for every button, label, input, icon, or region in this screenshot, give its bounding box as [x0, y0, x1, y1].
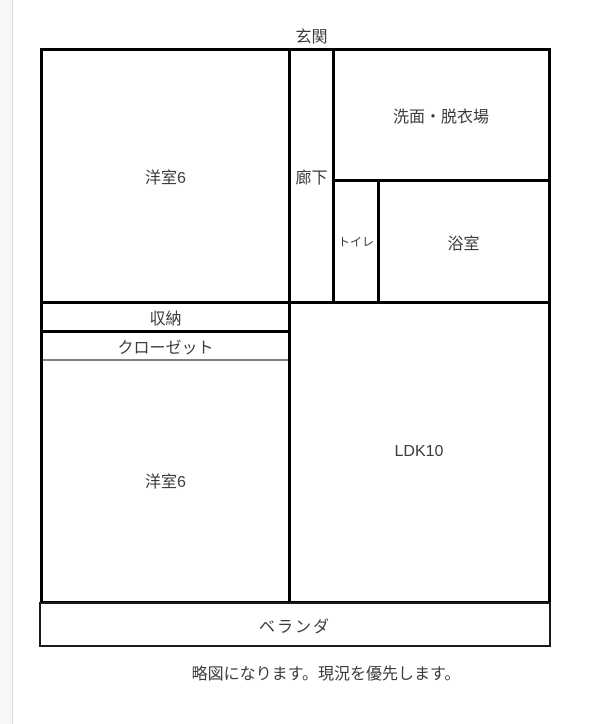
- room-ldk: LDK10: [291, 304, 547, 599]
- room-western-room-top: 洋室6: [43, 51, 288, 301]
- room-closet: クローゼット: [43, 333, 288, 359]
- room-washroom-label: 洗面・脱衣場: [393, 103, 489, 127]
- room-western-room-top-label: 洋室6: [145, 164, 186, 188]
- room-corridor: 廊下: [291, 51, 332, 301]
- room-toilet: トイレ: [335, 182, 377, 301]
- room-closet-label: クローゼット: [117, 334, 213, 358]
- room-bathroom-label: 浴室: [447, 230, 479, 254]
- room-storage: 収納: [43, 304, 288, 330]
- page-edge-strip: [0, 0, 13, 724]
- caption-note: 略図になります。現況を優先します。: [126, 660, 526, 684]
- room-corridor-label: 廊下: [295, 164, 327, 188]
- room-western-room-bottom-label: 洋室6: [145, 468, 186, 492]
- room-ldk-label: LDK10: [395, 443, 444, 461]
- room-veranda-label: ベランダ: [259, 613, 331, 637]
- room-toilet-label: トイレ: [338, 233, 374, 250]
- room-bathroom: 浴室: [380, 182, 547, 301]
- room-western-room-bottom: 洋室6: [43, 361, 288, 599]
- room-washroom: 洗面・脱衣場: [335, 51, 547, 179]
- room-veranda-label-wrap: ベランダ: [39, 602, 551, 647]
- entrance-label: 玄関: [288, 24, 335, 46]
- floor-plan-canvas: 玄関 洋室6 廊下 洗面・脱衣場 トイレ 浴室 収納 クローゼット 洋室6 LD…: [0, 0, 602, 724]
- room-storage-label: 収納: [149, 305, 181, 329]
